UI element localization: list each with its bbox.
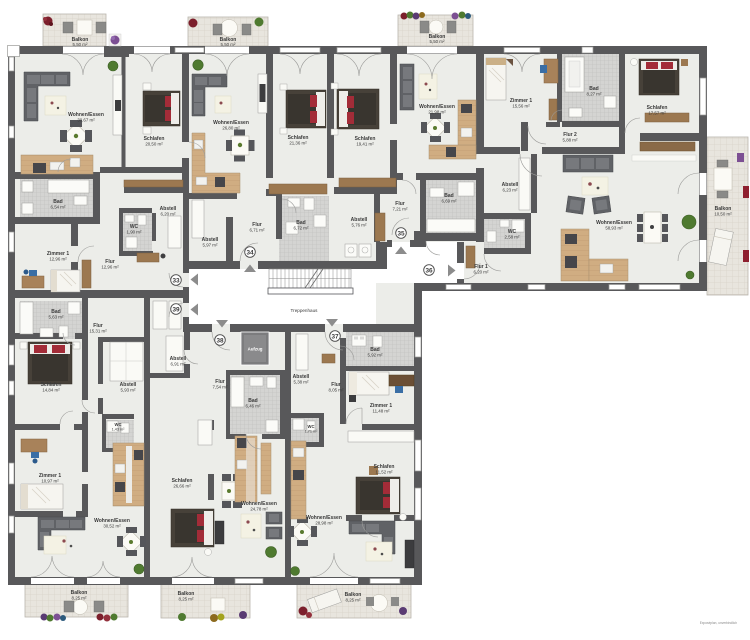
svg-text:5,97 m²: 5,97 m² [203,243,218,248]
svg-text:58,93 m²: 58,93 m² [605,226,623,231]
svg-text:5,63 m²: 5,63 m² [49,315,64,320]
svg-text:21,36 m²: 21,36 m² [289,141,307,146]
svg-text:15,31 m²: 15,31 m² [89,329,107,334]
svg-text:5,76 m²: 5,76 m² [352,223,367,228]
svg-text:12,96 m²: 12,96 m² [101,265,119,270]
svg-text:6,72 m²: 6,72 m² [294,226,309,231]
svg-text:1,71 m²: 1,71 m² [305,430,319,434]
svg-text:20,50 m²: 20,50 m² [145,142,163,147]
svg-text:26,66 m²: 26,66 m² [173,484,191,489]
svg-text:Aufzug: Aufzug [248,347,263,352]
svg-text:8,05 m²: 8,05 m² [329,388,344,393]
svg-text:7,21 m²: 7,21 m² [393,207,408,212]
svg-text:6,20 m²: 6,20 m² [161,212,176,217]
svg-text:34: 34 [246,249,254,256]
svg-text:24,78 m²: 24,78 m² [250,507,268,512]
svg-text:1,43 m²: 1,43 m² [112,428,126,432]
svg-text:5,50 m²: 5,50 m² [73,42,88,47]
svg-text:5,93 m²: 5,93 m² [121,388,136,393]
svg-text:8,27 m²: 8,27 m² [587,92,602,97]
svg-text:33: 33 [172,277,180,284]
svg-text:5,38 m²: 5,38 m² [294,380,309,385]
svg-text:1,90 m²: 1,90 m² [127,230,142,235]
svg-text:8,25 m²: 8,25 m² [72,596,87,601]
svg-text:26,80 m²: 26,80 m² [222,126,240,131]
svg-text:19,41 m²: 19,41 m² [356,142,374,147]
svg-text:10,97 m²: 10,97 m² [41,479,59,484]
svg-text:Exposéplan, unverbindlich: Exposéplan, unverbindlich [700,621,737,625]
svg-text:5,50 m²: 5,50 m² [221,42,236,47]
svg-text:6,23 m²: 6,23 m² [503,188,518,193]
svg-text:35: 35 [397,230,405,237]
svg-text:17,57 m²: 17,57 m² [648,111,666,116]
svg-text:7,54 m²: 7,54 m² [213,385,228,390]
svg-text:37: 37 [331,333,339,340]
svg-text:11,48 m²: 11,48 m² [372,409,390,414]
svg-text:10,50 m²: 10,50 m² [714,212,732,217]
svg-text:6,46 m²: 6,46 m² [246,404,261,409]
svg-text:5,50 m²: 5,50 m² [430,39,445,44]
svg-text:6,91 m²: 6,91 m² [171,362,186,367]
svg-text:Treppenhaus: Treppenhaus [291,308,319,313]
svg-text:6,54 m²: 6,54 m² [51,205,66,210]
svg-text:15,56 m²: 15,56 m² [512,104,530,109]
svg-text:30,67 m²: 30,67 m² [77,118,95,123]
svg-text:21,98 m²: 21,98 m² [428,110,446,115]
svg-text:38: 38 [216,337,224,344]
svg-text:28,98 m²: 28,98 m² [315,521,333,526]
svg-text:WC: WC [308,424,315,429]
svg-text:6,20 m²: 6,20 m² [474,270,489,275]
svg-text:39: 39 [172,306,180,313]
svg-text:36: 36 [425,267,433,274]
svg-text:6,69 m²: 6,69 m² [442,199,457,204]
svg-text:11,52 m²: 11,52 m² [375,470,393,475]
svg-text:14,84 m²: 14,84 m² [42,388,60,393]
svg-text:5,92 m²: 5,92 m² [368,353,383,358]
svg-text:6,71 m²: 6,71 m² [250,228,265,233]
svg-text:12,96 m²: 12,96 m² [49,257,67,262]
svg-text:30,52 m²: 30,52 m² [103,524,121,529]
svg-text:2,58 m²: 2,58 m² [505,235,520,240]
svg-text:8,25 m²: 8,25 m² [179,597,194,602]
svg-text:8,25 m²: 8,25 m² [346,598,361,603]
svg-text:WC: WC [115,422,122,427]
svg-text:5,88 m²: 5,88 m² [563,138,578,143]
